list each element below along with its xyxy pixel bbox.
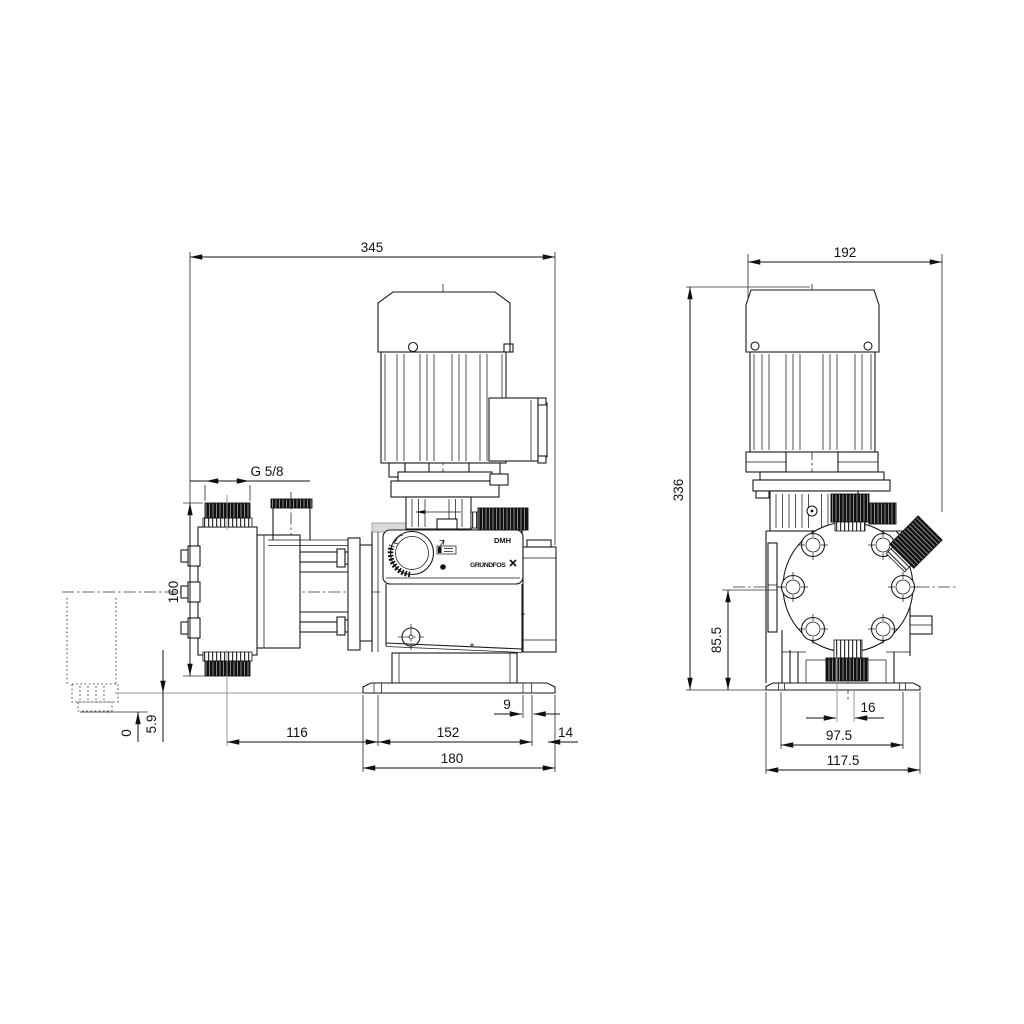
- tie-rod-top: [300, 552, 340, 562]
- side-rib: [768, 543, 777, 632]
- head-body: [198, 527, 257, 655]
- vent-valve-cap: [271, 499, 312, 508]
- brand-logo: GRUNDFOS: [470, 562, 506, 569]
- drawing-canvas: DMH GRUNDFOS: [0, 0, 1024, 1024]
- dim-base-slot-span: 152: [437, 725, 460, 740]
- rear-bracket: [523, 547, 556, 652]
- dim-connection-thread: G 5/8: [250, 464, 283, 479]
- mounting-plate: [391, 481, 499, 497]
- dim-slot-spacing: 97.5: [826, 728, 852, 743]
- base-plate-front: [766, 683, 920, 690]
- head-backplate: [257, 535, 300, 648]
- top-valve-front: [831, 494, 869, 522]
- dim-valve-offset: 16: [860, 700, 875, 715]
- fan-cover-front: [746, 290, 879, 352]
- bottom-valve-front: [826, 658, 868, 681]
- housing-flange: [348, 538, 360, 650]
- dim-overall-height: 336: [671, 479, 686, 502]
- dim-ref-zero: 0: [119, 729, 134, 737]
- motor-flange: [398, 472, 492, 481]
- fan-cover: [378, 292, 510, 352]
- dim-overall-length: 345: [361, 240, 384, 255]
- dim-center-to-base: 85.5: [709, 627, 724, 653]
- dim-foot-height: 5.9: [144, 715, 159, 734]
- adjust-knob-front: [869, 503, 896, 524]
- stroke-knob-side: [478, 508, 528, 530]
- dim-base-length: 180: [441, 751, 464, 766]
- tie-rod-bottom: [300, 622, 340, 632]
- dim-head-height: 160: [166, 581, 181, 604]
- dim-slot-width: 9: [503, 697, 511, 712]
- indicator-dot: [440, 564, 446, 570]
- dim-base-overhang: 14: [558, 725, 574, 740]
- base-plate-side: [363, 683, 555, 693]
- dim-head-to-base: 116: [286, 725, 308, 740]
- mounting-plate-front: [753, 480, 890, 491]
- pedestal: [392, 653, 517, 683]
- model-label: DMH: [494, 536, 511, 545]
- dim-overall-width: 192: [834, 245, 857, 260]
- dim-base-width: 117.5: [827, 753, 860, 768]
